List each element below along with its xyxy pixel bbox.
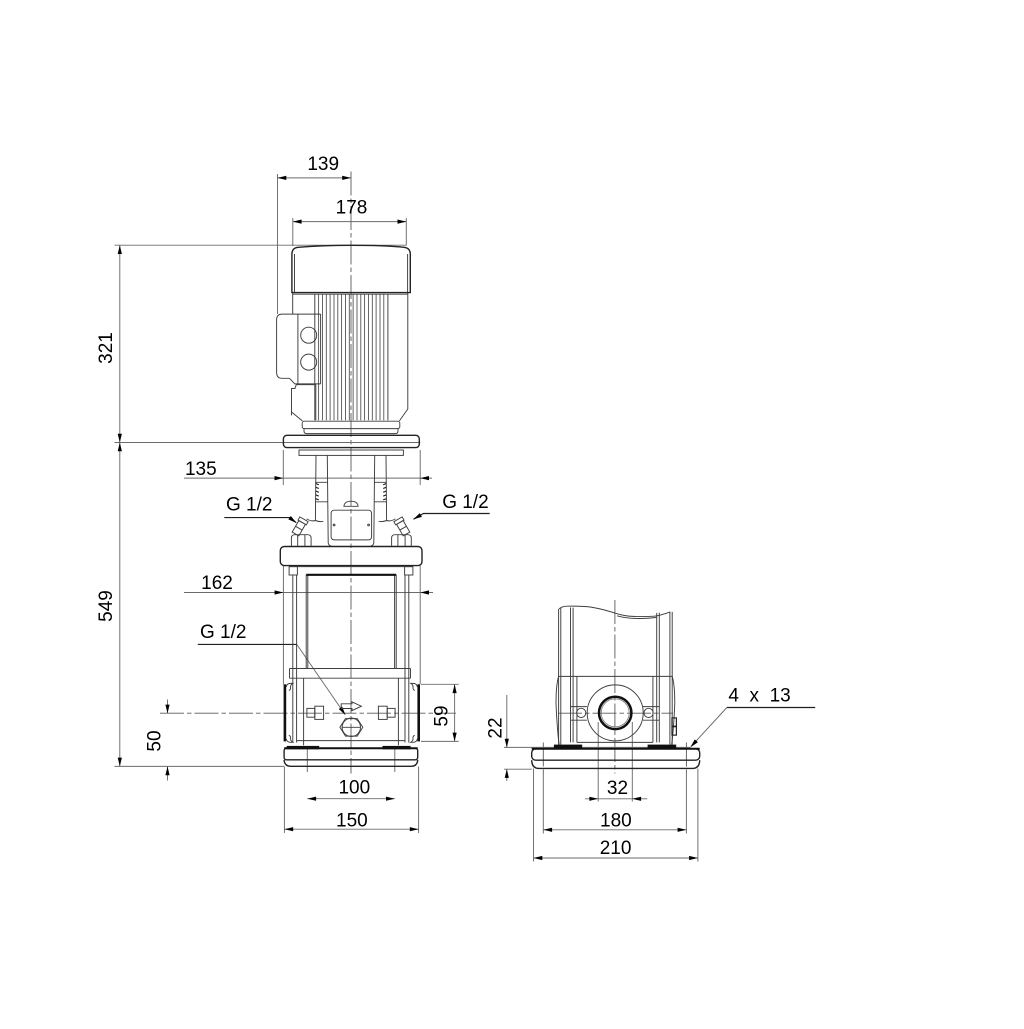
svg-text:549: 549 xyxy=(96,590,117,622)
svg-text:139: 139 xyxy=(307,154,339,175)
svg-text:180: 180 xyxy=(600,811,632,832)
svg-text:162: 162 xyxy=(201,573,233,594)
svg-text:22: 22 xyxy=(486,717,507,738)
svg-text:321: 321 xyxy=(96,332,117,364)
svg-text:G 1/2: G 1/2 xyxy=(442,492,488,513)
svg-text:4 x 13: 4 x 13 xyxy=(728,685,790,706)
svg-text:50: 50 xyxy=(144,730,165,751)
svg-text:32: 32 xyxy=(607,778,628,799)
svg-text:59: 59 xyxy=(431,705,452,726)
svg-text:G 1/2: G 1/2 xyxy=(226,495,272,516)
svg-text:210: 210 xyxy=(600,838,632,859)
svg-text:150: 150 xyxy=(336,810,368,831)
svg-text:135: 135 xyxy=(185,459,217,480)
svg-text:100: 100 xyxy=(338,777,370,798)
svg-text:G 1/2: G 1/2 xyxy=(200,622,246,643)
svg-text:178: 178 xyxy=(336,198,368,219)
